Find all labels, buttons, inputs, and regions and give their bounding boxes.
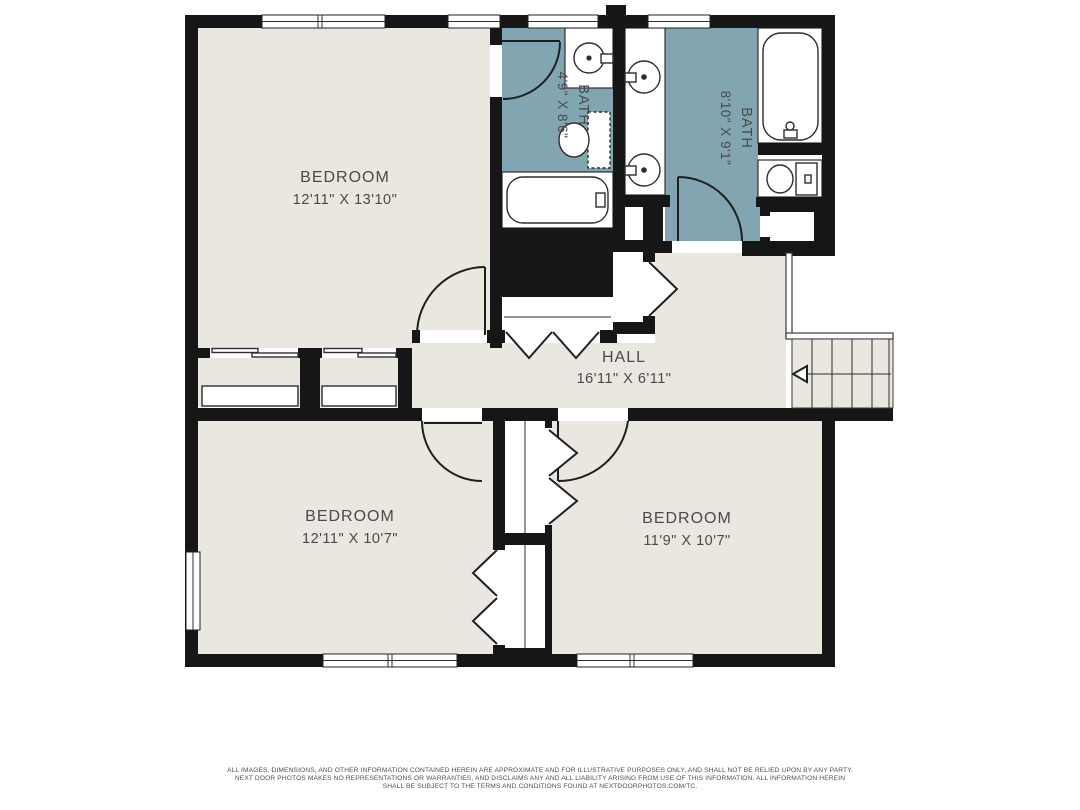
disclaimer-line: SHALL BE SUBJECT TO THE TERMS AND CONDIT… xyxy=(0,783,1080,791)
room-dims: 8'10" X 9'1" xyxy=(718,91,733,166)
sink-drain-icon xyxy=(641,167,647,173)
room-label: BEDROOM xyxy=(305,508,395,525)
closet-a-sliding-door xyxy=(210,348,298,358)
room-dims: 12'11" X 13'10" xyxy=(293,192,398,208)
tub-faucet-icon xyxy=(596,193,605,207)
floorplan-page: BEDROOM 12'11" X 13'10" BATH 4'9" X 8'6"… xyxy=(0,0,1080,810)
room-label: BEDROOM xyxy=(642,510,732,527)
wall-between-baths xyxy=(613,15,625,207)
closet-column-upper xyxy=(505,421,545,533)
window-bedroom-br-bottom xyxy=(577,654,693,667)
room-dims: 11'9" X 10'7" xyxy=(643,533,730,549)
toilet-flush-icon xyxy=(805,175,811,183)
window-bedroom-tl-2 xyxy=(448,15,500,28)
window-bath-large xyxy=(648,15,710,28)
faucet-icon xyxy=(601,54,613,63)
stair-guard-vertical xyxy=(786,253,792,337)
door-opening-bath-small xyxy=(490,45,502,97)
window-bedroom-tl-1 xyxy=(262,15,385,28)
toilet-bowl-icon xyxy=(767,165,793,193)
wall-right-bottom xyxy=(822,415,835,667)
stair-guard-horizontal xyxy=(786,333,893,339)
door-opening-bath-large xyxy=(672,241,742,253)
hall-closet-floor xyxy=(502,297,613,330)
linen-niche-opening xyxy=(760,216,772,237)
room-dims: 16'11" X 6'11" xyxy=(577,371,672,387)
closet-column-lower xyxy=(505,545,545,648)
disclaimer-line: ALL IMAGES, DIMENSIONS, AND OTHER INFORM… xyxy=(0,767,1080,775)
wall-stairs-south xyxy=(818,408,893,421)
door-opening-bedroom-tl xyxy=(420,330,487,343)
wall-bottom xyxy=(185,654,835,667)
wall-bath-door-jamb-left xyxy=(655,241,672,253)
room-label: BEDROOM xyxy=(300,169,390,186)
disclaimer-line: NEXT DOOR PHOTOS MAKES NO REPRESENTATION… xyxy=(0,775,1080,783)
sink-drain-icon xyxy=(586,55,591,60)
door-opening-bedroom-br xyxy=(558,408,628,421)
faucet-icon xyxy=(625,73,636,82)
floorplan-drawing: BEDROOM 12'11" X 13'10" BATH 4'9" X 8'6"… xyxy=(0,0,1080,810)
closet-b-sliding-door xyxy=(322,348,396,358)
bedroom-top-left-floor xyxy=(198,28,490,348)
wall-chimney-bump xyxy=(606,5,626,16)
wall-under-tub xyxy=(758,143,822,155)
wall-right-top xyxy=(822,15,835,256)
window-bath-small xyxy=(528,15,598,28)
linen-niche-floor xyxy=(770,212,814,241)
stairwell xyxy=(786,253,893,408)
bathtub-icon xyxy=(507,177,608,223)
faucet-icon xyxy=(625,166,636,175)
room-label: BATH xyxy=(738,107,754,149)
room-dims: 4'9" X 8'6" xyxy=(555,72,570,139)
room-dims: 12'11" X 10'7" xyxy=(302,531,398,547)
room-label: HALL xyxy=(602,349,646,366)
room-label: BATH xyxy=(575,84,591,126)
hall-closet-mass xyxy=(502,235,613,297)
window-bedroom-bl-bottom xyxy=(323,654,457,667)
tub-faucet-icon xyxy=(784,130,797,138)
sink-drain-icon xyxy=(641,74,647,80)
door-opening-bedroom-bl xyxy=(422,408,482,421)
strip-closet-floor xyxy=(618,252,643,322)
wall-closet-divider xyxy=(300,348,320,413)
window-bedroom-bl-left xyxy=(186,552,200,630)
closet-a-shelf xyxy=(202,386,298,406)
disclaimer: ALL IMAGES, DIMENSIONS, AND OTHER INFORM… xyxy=(0,767,1080,792)
hall-nook-floor xyxy=(655,253,786,343)
tub-drain-icon xyxy=(786,122,794,130)
wall-post-a xyxy=(487,330,505,343)
closet-b-shelf xyxy=(322,386,396,406)
